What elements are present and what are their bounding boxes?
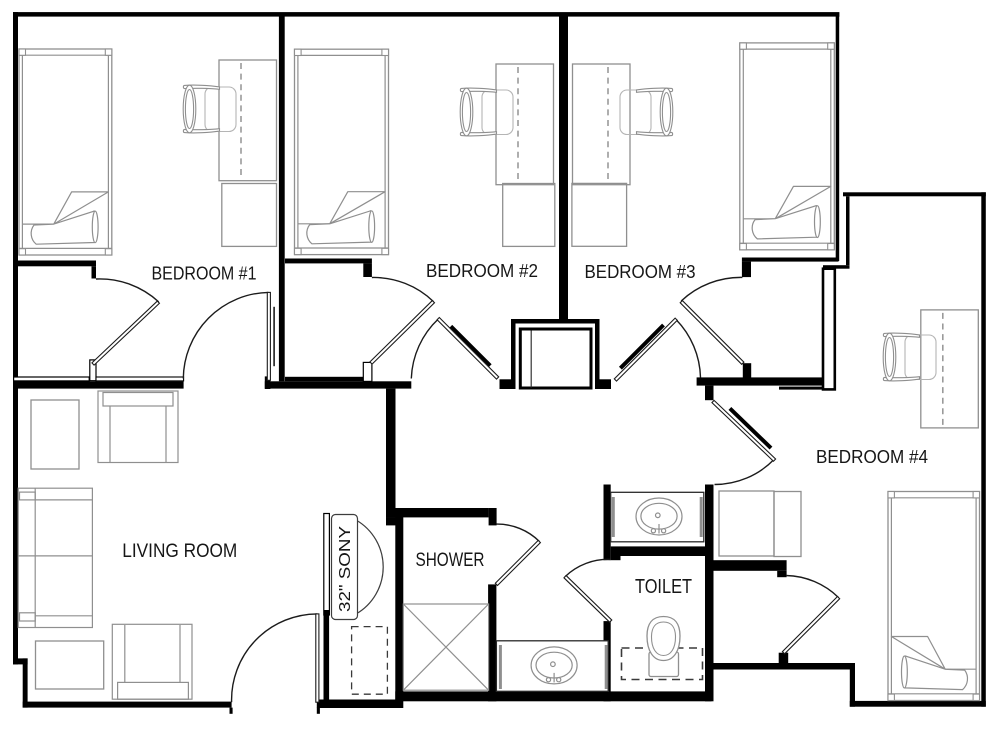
svg-text:TOILET: TOILET [635,576,692,598]
svg-text:LIVING ROOM: LIVING ROOM [122,540,237,562]
svg-text:BEDROOM #4: BEDROOM #4 [816,446,928,467]
svg-text:SHOWER: SHOWER [416,550,485,571]
svg-text:BEDROOM #1: BEDROOM #1 [152,263,257,284]
svg-text:BEDROOM #2: BEDROOM #2 [426,260,538,281]
svg-text:32" SONY: 32" SONY [337,526,354,612]
svg-text:BEDROOM #3: BEDROOM #3 [585,261,696,282]
